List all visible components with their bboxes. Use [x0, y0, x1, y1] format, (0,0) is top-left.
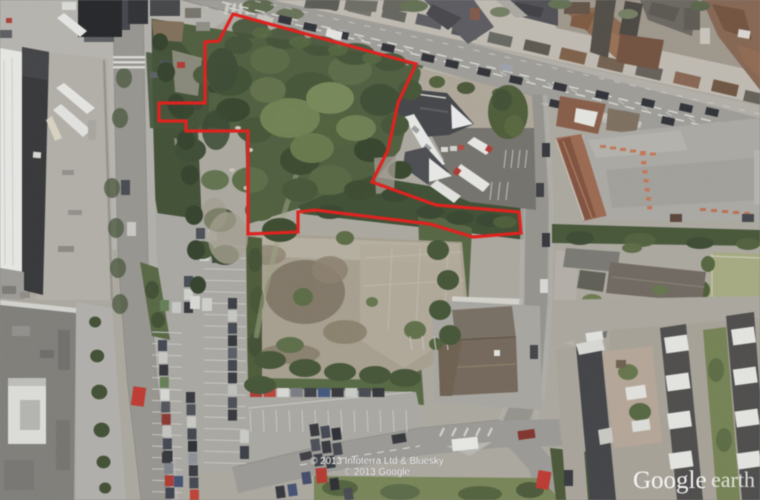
svg-text:Google: Google: [633, 467, 707, 494]
svg-text:earth: earth: [711, 467, 755, 492]
svg-text:© 2013 Google: © 2013 Google: [344, 467, 411, 478]
svg-text:© 2013 Infoterra Ltd & Bluesky: © 2013 Infoterra Ltd & Bluesky: [310, 456, 444, 467]
